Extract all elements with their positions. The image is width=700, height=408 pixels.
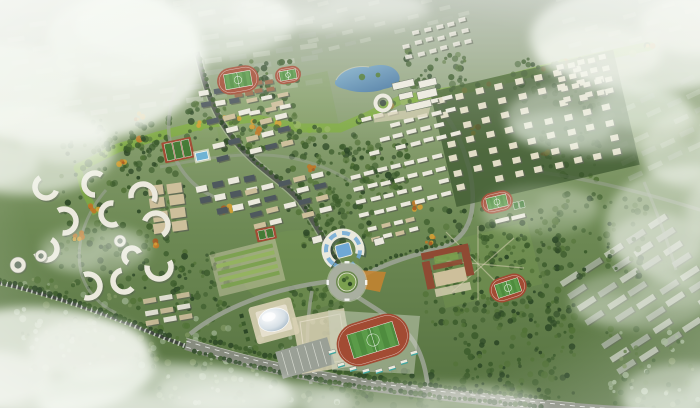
aerial-masterplan-rendering [0, 0, 700, 408]
scene-svg [0, 0, 700, 408]
haze-vignette [0, 0, 700, 408]
